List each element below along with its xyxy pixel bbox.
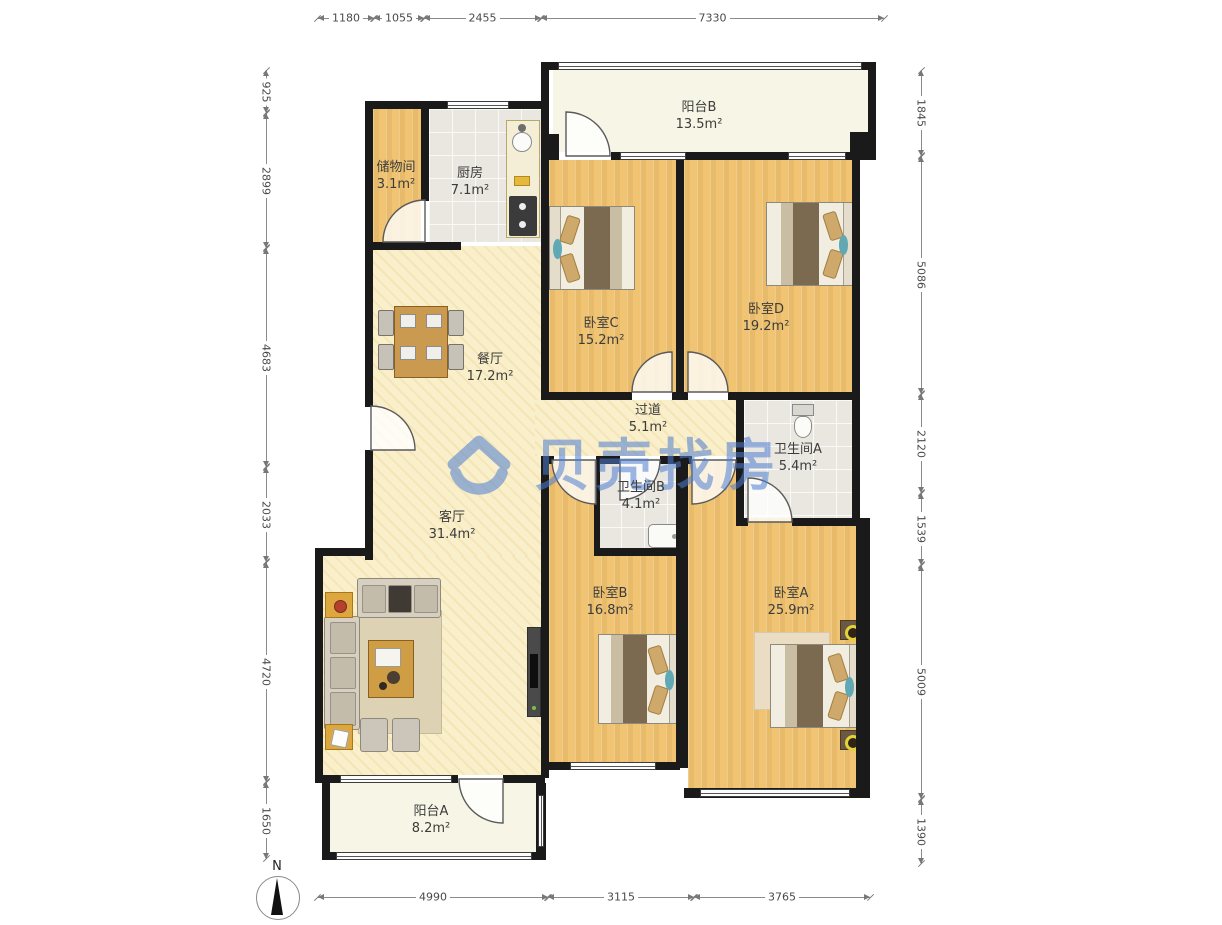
room-label-bedroom-a: 卧室A25.9m² [768,586,815,620]
wall-segment [676,160,684,400]
wall-segment [315,548,373,556]
wall-segment [421,101,429,201]
window [558,62,862,70]
wall-segment [365,242,461,250]
wall-segment [852,152,860,526]
ottoman [360,718,388,752]
wall-segment [594,460,600,552]
dimension-label: 1390 [915,815,928,849]
dimension-label: 3115 [604,891,638,904]
room-label-balcony-b: 阳台B13.5m² [676,100,723,134]
wall-segment [594,548,684,556]
room-label-hallway: 过道5.1m² [629,403,668,437]
dimension-label: 4683 [260,341,273,375]
dimension-segment: 1845 [915,70,927,156]
wall-segment [315,556,323,783]
dining-chair [378,310,394,336]
dimension-segment: 2033 [260,467,272,562]
dimension-segment: 5009 [915,565,927,799]
north-label: N [248,860,306,873]
room-label-dining: 餐厅17.2m² [467,352,514,386]
wall-segment [736,518,748,526]
kitchen-faucet [518,124,526,132]
dimension-label: 2120 [915,427,928,461]
room-label-bedroom-b: 卧室B16.8m² [587,586,634,620]
window [538,795,544,847]
room-label-storage: 储物间3.1m² [376,160,415,194]
dimension-label: 1539 [915,512,928,546]
wall-segment [676,456,688,768]
dimension-segment: 5086 [915,156,927,394]
dimension-label: 5086 [915,258,928,292]
wall-segment [736,456,744,464]
wall-segment [322,783,330,860]
toilet-bowl [794,416,812,438]
wall-segment [545,134,559,160]
dimension-segment: 4990 [318,891,548,903]
dimension-segment: 1539 [915,493,927,565]
wall-segment [541,456,549,778]
wall-segment [365,250,373,407]
sofa-top [357,578,441,618]
bed-bedroom-c [549,206,635,290]
kitchen-board [514,176,530,186]
dimension-segment: 2455 [424,12,541,24]
dimension-label: 1650 [260,804,273,838]
dining-chair [378,344,394,370]
dimension-label: 1055 [382,12,416,25]
coffee-table [368,640,414,698]
dimension-label: 1180 [329,12,363,25]
side-table-plant [325,592,353,618]
window [447,101,509,109]
place-setting [400,314,416,328]
window [788,152,846,160]
dimension-label: 1845 [915,96,928,130]
toilet [792,404,814,416]
wall-segment [856,518,870,796]
dimension-label: 925 [260,78,273,105]
place-setting [426,346,442,360]
window [336,852,532,860]
stove-burner [519,221,526,228]
dimension-segment: 3765 [694,891,870,903]
bed-bedroom-a [770,644,858,728]
dimension-label: 4720 [260,655,273,689]
room-label-bedroom-c: 卧室C15.2m² [578,316,625,350]
kitchen-sink [512,132,532,152]
room-label-living: 客厅31.4m² [429,510,476,544]
dimension-segment: 3115 [548,891,694,903]
bed-bedroom-b [598,634,678,724]
wall-segment [728,392,860,400]
room-label-bath-b: 卫生间B4.1m² [617,480,665,514]
wall-segment [672,392,688,400]
bed-bedroom-d [766,202,852,286]
wall-segment [792,518,860,526]
dimension-segment: 2120 [915,394,927,493]
dimension-label: 2033 [260,498,273,532]
wall-segment [541,62,549,400]
dimension-label: 5009 [915,665,928,699]
room-label-bath-a: 卫生间A5.4m² [774,442,822,476]
room-label-kitchen: 厨房7.1m² [451,166,490,200]
kitchen-stove [509,196,537,236]
stove-burner [519,203,526,210]
dimension-segment: 1650 [260,782,272,859]
wall-segment [596,456,620,464]
wall-segment [365,101,373,250]
dimension-label: 2455 [466,12,500,25]
room-label-bedroom-d: 卧室D19.2m² [743,302,790,336]
tv-light [532,706,536,710]
dimension-segment: 2899 [260,113,272,248]
dimension-segment: 4720 [260,562,272,782]
dimension-segment: 1180 [318,12,374,24]
room-label-balcony-a: 阳台A8.2m² [412,804,451,838]
place-setting [426,314,442,328]
dimension-label: 2899 [260,164,273,198]
side-table-book [325,724,353,750]
wall-segment [549,456,554,464]
dimension-label: 4990 [416,891,450,904]
window [340,775,452,783]
north-arrow-icon: N [248,860,306,922]
tv [530,654,538,688]
place-setting [400,346,416,360]
dimension-segment: 925 [260,70,272,113]
dimension-segment: 7330 [541,12,884,24]
dimension-segment: 4683 [260,248,272,467]
dining-chair [448,344,464,370]
window [570,762,656,770]
dining-chair [448,310,464,336]
floor-plan: 贝壳找房 阳台B13.5m² 储物间3.1m² 厨房7.1m² 卧室C15.2m… [0,0,1222,925]
sofa-left [324,616,360,730]
window [700,789,850,797]
wall-segment [503,775,545,783]
dimension-label: 3765 [765,891,799,904]
window [620,152,686,160]
dimension-label: 7330 [696,12,730,25]
ottoman [392,718,420,752]
wall-segment [365,450,373,560]
wall-segment [541,392,632,400]
dimension-segment: 1055 [374,12,424,24]
dimension-segment: 1390 [915,799,927,864]
